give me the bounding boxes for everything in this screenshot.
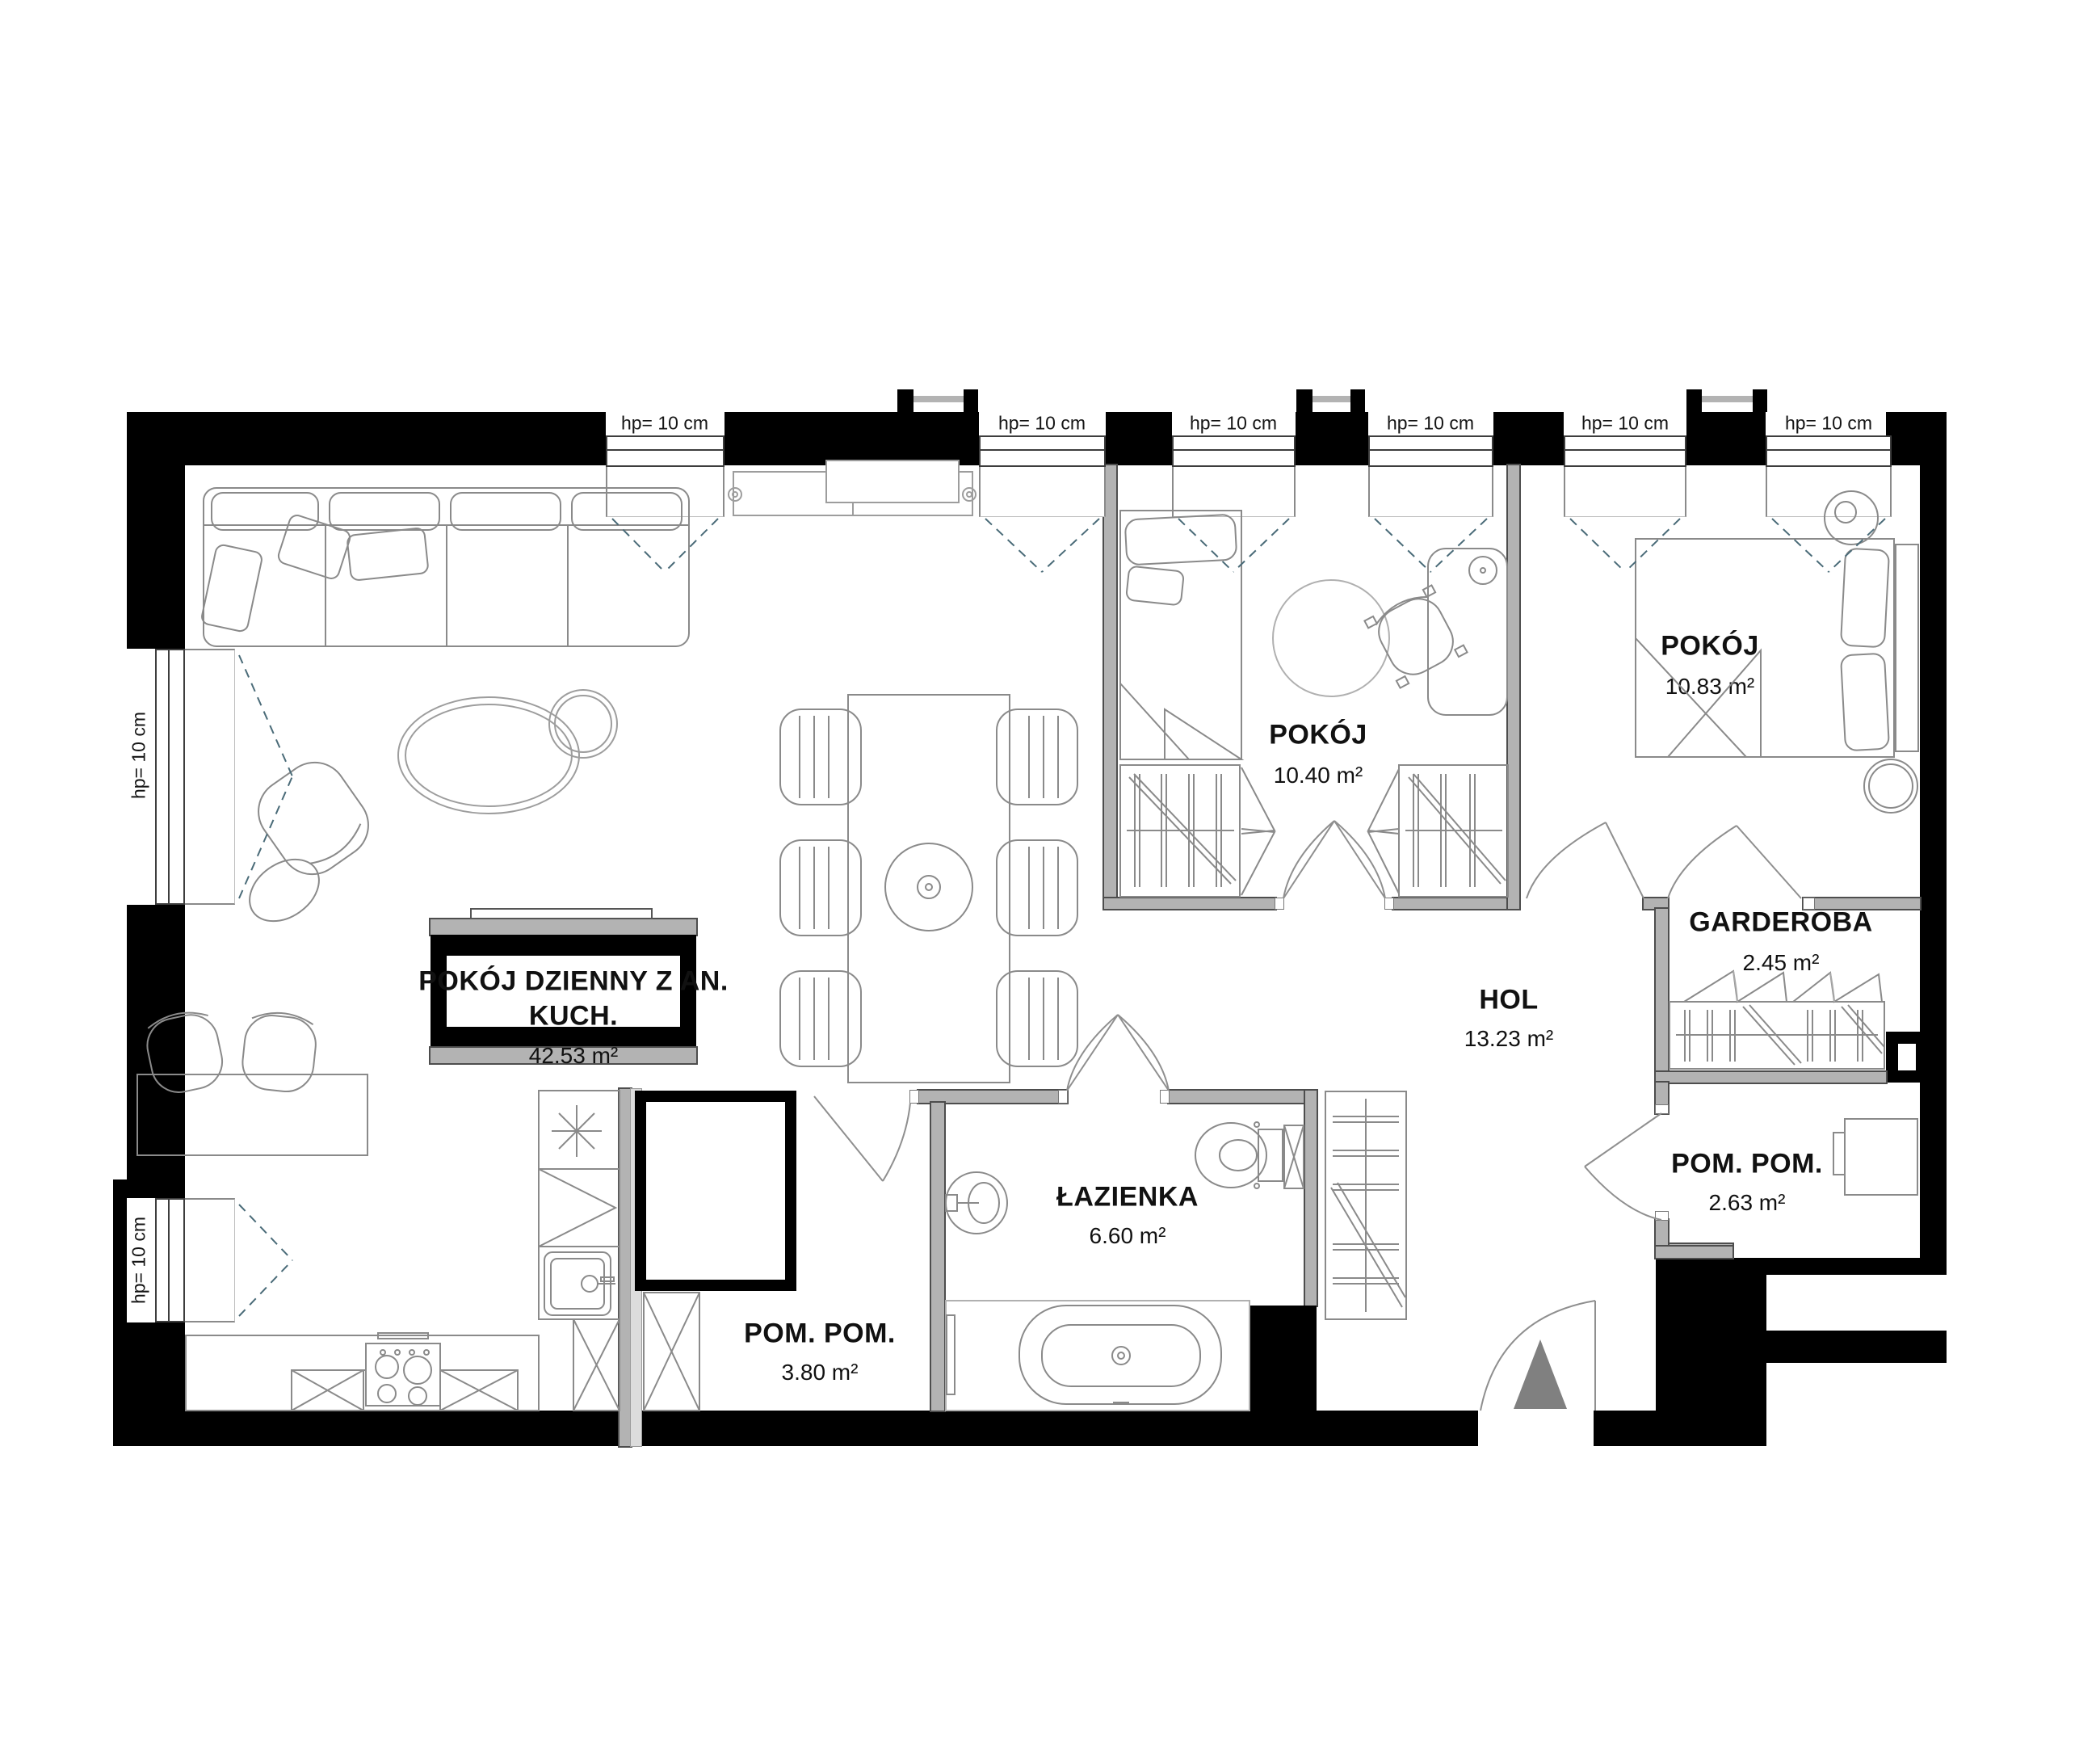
kitchen-counter: [186, 1333, 539, 1411]
sofa: [200, 488, 689, 646]
bathtub: [946, 1301, 1249, 1411]
wardrobe-room1-left: [1120, 765, 1275, 897]
toilet: [1195, 1122, 1283, 1188]
wardrobe-hol: [1325, 1091, 1406, 1319]
kitchen-cabinets: [539, 1091, 619, 1411]
island-chairs: [137, 1007, 367, 1155]
pom-small-desk: [1833, 1119, 1917, 1195]
bathroom-sink: [946, 1172, 1007, 1234]
furniture-layer: [0, 0, 2100, 1745]
floor-plan: hp= 10 cm hp= 10 cm hp= 10 cm hp= 10 cm …: [0, 0, 2100, 1745]
sideboard: [729, 460, 976, 515]
window-swing-dashes: [239, 519, 1885, 1316]
bed-room1: [1120, 511, 1241, 759]
wardrobe-room1-right: [1368, 765, 1508, 897]
entrance-marker: [1514, 1339, 1567, 1409]
pom-large-cabinet: [644, 1293, 699, 1411]
wardrobe-garderoba: [1669, 971, 1884, 1069]
door-swings: [814, 821, 1801, 1411]
desk-room1: [1273, 549, 1507, 715]
bed-room2: [1636, 491, 1918, 813]
armchair: [238, 750, 381, 934]
rug: [398, 690, 617, 814]
dining-chairs: [780, 709, 1077, 1066]
dining-table: [848, 695, 1010, 1083]
